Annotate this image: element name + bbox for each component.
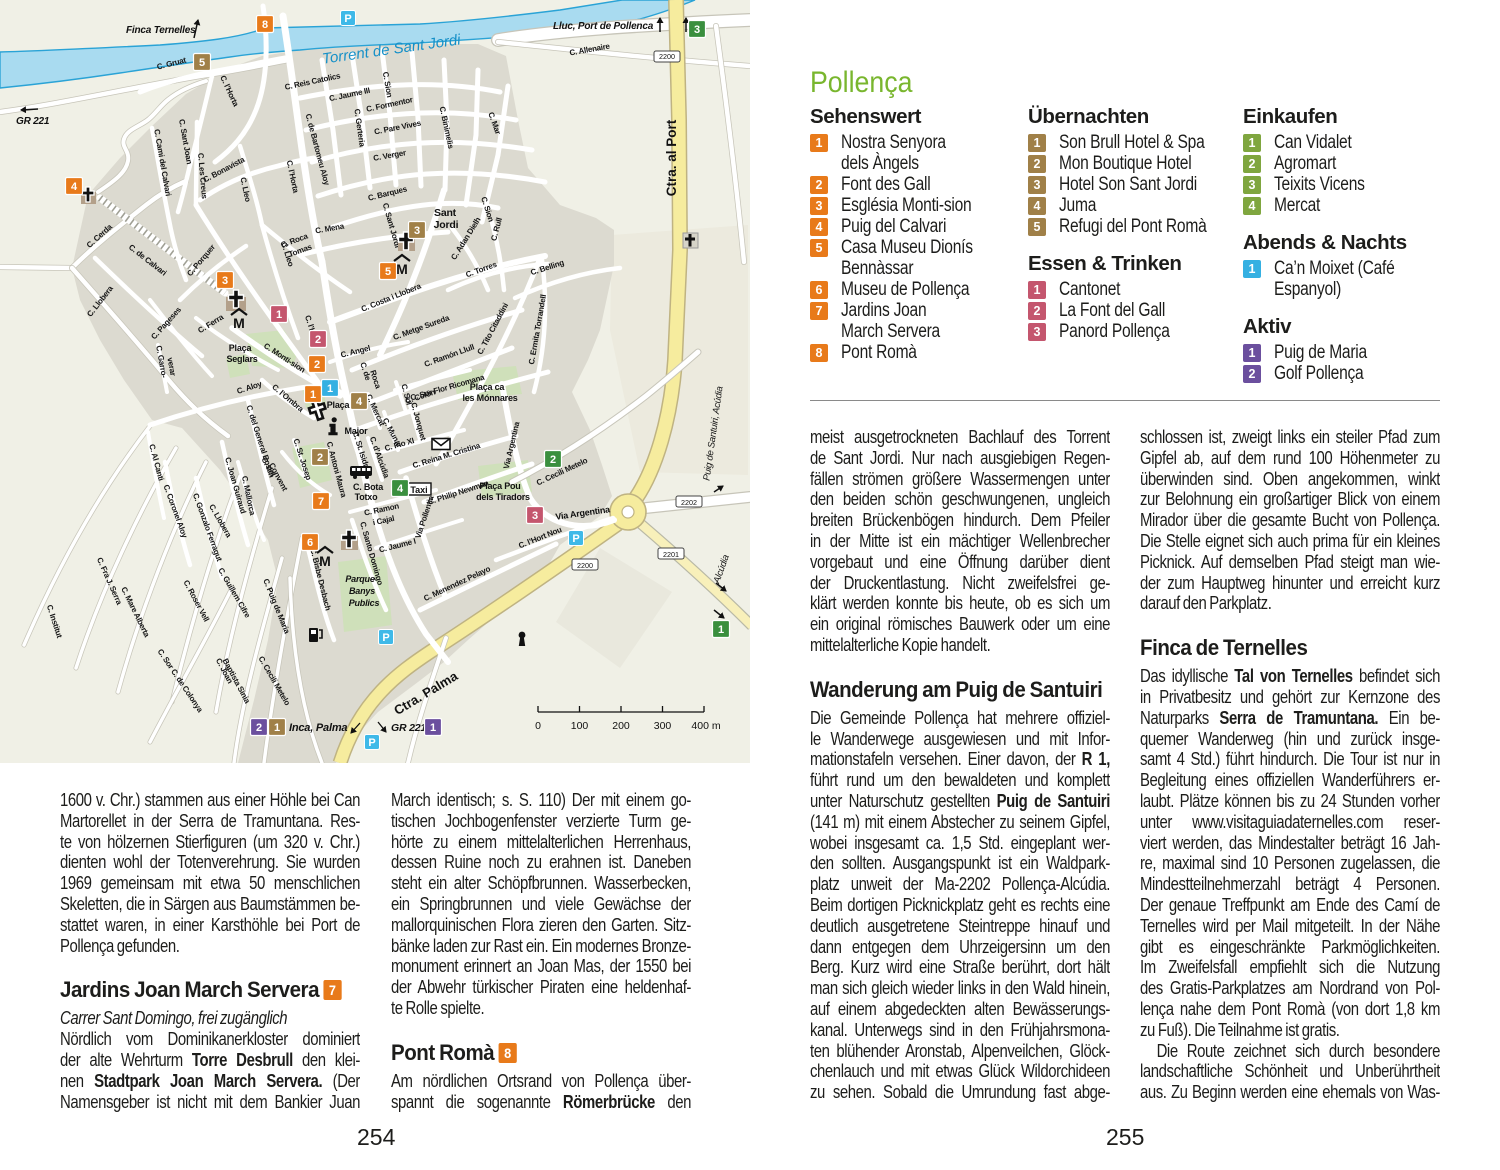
svg-text:4: 4 <box>397 483 404 495</box>
svg-text:1: 1 <box>718 624 724 636</box>
svg-text:3: 3 <box>222 275 228 287</box>
svg-text:100: 100 <box>571 720 589 732</box>
svg-text:Ctra. al Port: Ctra. al Port <box>664 119 679 196</box>
svg-text:1: 1 <box>430 722 436 734</box>
svg-text:2200: 2200 <box>659 52 675 61</box>
svg-text:5: 5 <box>199 57 205 69</box>
svg-text:Totxo: Totxo <box>355 492 379 502</box>
svg-text:Publics: Publics <box>349 598 380 608</box>
svg-text:M: M <box>396 261 408 277</box>
svg-text:6: 6 <box>307 537 313 549</box>
svg-text:Lluc, Port de Pollenca: Lluc, Port de Pollenca <box>553 21 654 32</box>
svg-text:Parque: Parque <box>345 574 375 584</box>
svg-text:2202: 2202 <box>681 498 697 507</box>
svg-text:Finca Ternelles: Finca Ternelles <box>126 25 196 36</box>
svg-text:GR 221: GR 221 <box>391 722 426 734</box>
svg-text:2: 2 <box>315 334 321 346</box>
svg-text:2: 2 <box>314 359 320 371</box>
svg-text:Plaça: Plaça <box>229 343 253 353</box>
svg-text:3: 3 <box>414 225 420 237</box>
svg-text:Sant: Sant <box>434 207 457 219</box>
svg-text:P: P <box>382 632 389 644</box>
svg-text:200: 200 <box>612 720 630 732</box>
svg-text:P: P <box>368 737 375 749</box>
svg-text:M: M <box>233 315 245 331</box>
svg-text:8: 8 <box>262 19 268 31</box>
svg-text:Seglars: Seglars <box>226 354 257 364</box>
svg-text:3: 3 <box>532 510 538 522</box>
svg-text:4: 4 <box>71 181 78 193</box>
svg-text:1: 1 <box>274 722 280 734</box>
svg-text:Jordi: Jordi <box>434 219 459 231</box>
svg-text:300: 300 <box>654 720 672 732</box>
svg-text:Inca, Palma: Inca, Palma <box>289 722 347 734</box>
svg-text:dels Tiradors: dels Tiradors <box>476 492 530 502</box>
svg-text:1: 1 <box>327 383 333 395</box>
svg-text:1: 1 <box>276 309 282 321</box>
svg-text:2201: 2201 <box>663 550 679 559</box>
svg-text:Taxi: Taxi <box>410 485 427 495</box>
svg-text:2200: 2200 <box>577 561 593 570</box>
svg-text:400 m: 400 m <box>691 720 720 732</box>
svg-text:4: 4 <box>356 396 363 408</box>
svg-text:Plaça Pou: Plaça Pou <box>479 481 520 491</box>
svg-text:1: 1 <box>310 389 316 401</box>
svg-text:Plaça ca: Plaça ca <box>470 382 506 392</box>
svg-text:M: M <box>319 553 331 569</box>
svg-text:les Mónnares: les Mónnares <box>462 393 517 403</box>
svg-text:2: 2 <box>550 454 556 466</box>
svg-text:GR 221: GR 221 <box>16 116 50 127</box>
svg-text:Banys: Banys <box>349 586 375 596</box>
svg-text:7: 7 <box>318 496 324 508</box>
svg-text:5: 5 <box>385 266 391 278</box>
svg-text:2: 2 <box>256 722 262 734</box>
svg-text:Plaça: Plaça <box>327 400 351 410</box>
svg-text:0: 0 <box>535 720 541 732</box>
svg-text:P: P <box>572 533 579 545</box>
svg-text:2: 2 <box>317 452 323 464</box>
svg-text:P: P <box>344 13 351 25</box>
svg-text:C. Bota: C. Bota <box>353 482 384 492</box>
svg-text:3: 3 <box>694 24 700 36</box>
